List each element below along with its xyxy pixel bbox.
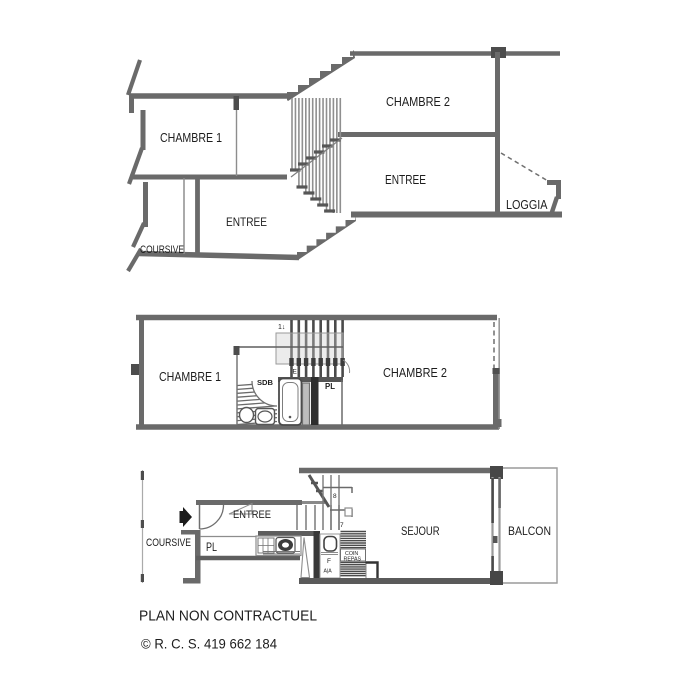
svg-text:1↓: 1↓: [278, 324, 285, 331]
svg-text:7: 7: [340, 522, 344, 529]
svg-text:CHAMBRE 2: CHAMBRE 2: [386, 94, 450, 109]
svg-text:SEJOUR: SEJOUR: [401, 524, 440, 538]
svg-text:REPAS: REPAS: [344, 557, 362, 563]
svg-text:CHAMBRE 1: CHAMBRE 1: [160, 130, 222, 145]
svg-text:8: 8: [333, 493, 337, 500]
svg-text:COURSIVE: COURSIVE: [140, 244, 184, 256]
svg-text:BALCON: BALCON: [508, 524, 551, 538]
svg-text:E: E: [293, 369, 298, 376]
svg-text:ENTREE: ENTREE: [226, 217, 267, 229]
svg-text:COURSIVE: COURSIVE: [146, 537, 191, 549]
svg-text:CHAMBRE 1: CHAMBRE 1: [159, 369, 221, 384]
svg-text:PL: PL: [325, 382, 335, 391]
svg-text:A|A: A|A: [324, 569, 333, 575]
svg-text:© R. C. S. 419 662 184: © R. C. S. 419 662 184: [141, 637, 277, 652]
svg-text:PLAN NON CONTRACTUEL: PLAN NON CONTRACTUEL: [139, 609, 317, 625]
svg-text:F: F: [327, 558, 331, 565]
svg-text:PL: PL: [206, 540, 217, 554]
svg-text:ENTREE: ENTREE: [233, 509, 271, 521]
svg-text:ENTREE: ENTREE: [385, 173, 426, 187]
svg-text:CHAMBRE 2: CHAMBRE 2: [383, 365, 447, 380]
svg-text:SDB: SDB: [257, 378, 274, 387]
svg-text:LOGGIA: LOGGIA: [506, 198, 548, 212]
